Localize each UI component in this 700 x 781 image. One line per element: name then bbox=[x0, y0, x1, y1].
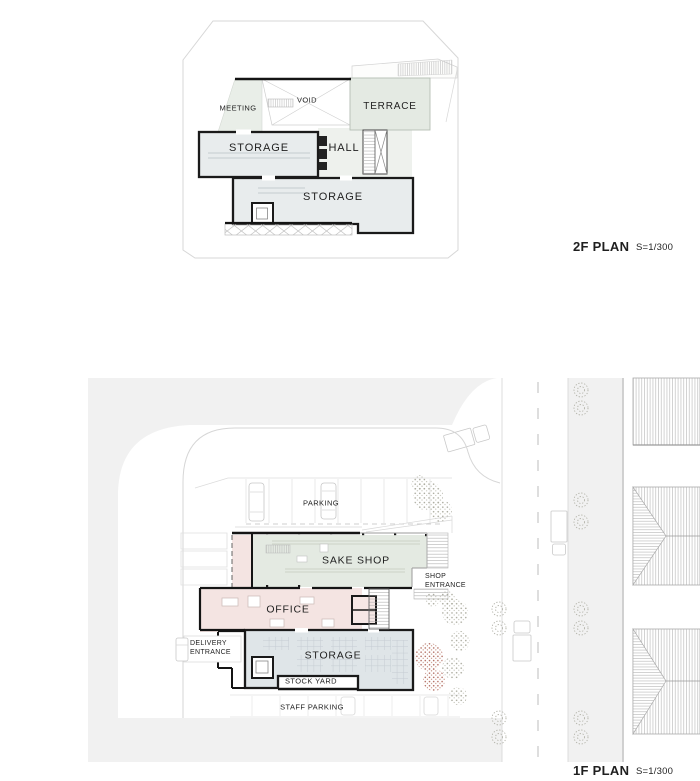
catwalk-2f bbox=[225, 224, 352, 235]
plan-1f-scale: S=1/300 bbox=[636, 766, 673, 778]
neighbor-houses bbox=[633, 378, 700, 734]
plan-1f-linework bbox=[88, 378, 700, 762]
stair-1f bbox=[369, 589, 389, 629]
area-label-shop-entrance: SHOP ENTRANCE bbox=[425, 572, 466, 590]
area-label-office: OFFICE bbox=[266, 603, 309, 616]
architectural-plan-sheet: MEETING VOID TERRACE STORAGE HALL STORAG… bbox=[0, 0, 700, 781]
area-label-sake-shop: SAKE SHOP bbox=[322, 554, 390, 567]
plan-2f-scale: S=1/300 bbox=[636, 242, 673, 254]
red-maple-tree bbox=[415, 643, 443, 671]
area-label-storage-1f: STORAGE bbox=[305, 649, 362, 662]
street-vehicles bbox=[443, 424, 567, 661]
room-label-meeting: MEETING bbox=[220, 103, 257, 112]
room-label-storage-lower-2f: STORAGE bbox=[303, 191, 363, 205]
room-label-terrace: TERRACE bbox=[363, 101, 416, 114]
room-label-hall: HALL bbox=[328, 142, 359, 156]
building-1f bbox=[176, 516, 452, 690]
stair-2f bbox=[363, 130, 387, 174]
corner-vegetation bbox=[411, 475, 452, 522]
area-label-stock-yard: STOCK YARD bbox=[285, 676, 337, 685]
area-label-parking: PARKING bbox=[303, 498, 339, 507]
garden-vegetation bbox=[415, 591, 470, 705]
area-label-delivery-entrance: DELIVERY ENTRANCE bbox=[190, 639, 231, 657]
room-label-void: VOID bbox=[297, 95, 317, 104]
floor-plan-drawing bbox=[0, 0, 700, 781]
area-label-staff-parking: STAFF PARKING bbox=[280, 702, 344, 711]
room-label-storage-upper-2f: STORAGE bbox=[229, 142, 289, 156]
staff-parking-area bbox=[230, 695, 460, 717]
delivery-truck bbox=[176, 638, 188, 661]
plan-1f-title: 1F PLAN bbox=[573, 763, 629, 780]
shop-entrance-steps bbox=[427, 533, 448, 568]
plan-2f-linework bbox=[183, 21, 458, 258]
plan-2f-title: 2F PLAN bbox=[573, 239, 629, 256]
